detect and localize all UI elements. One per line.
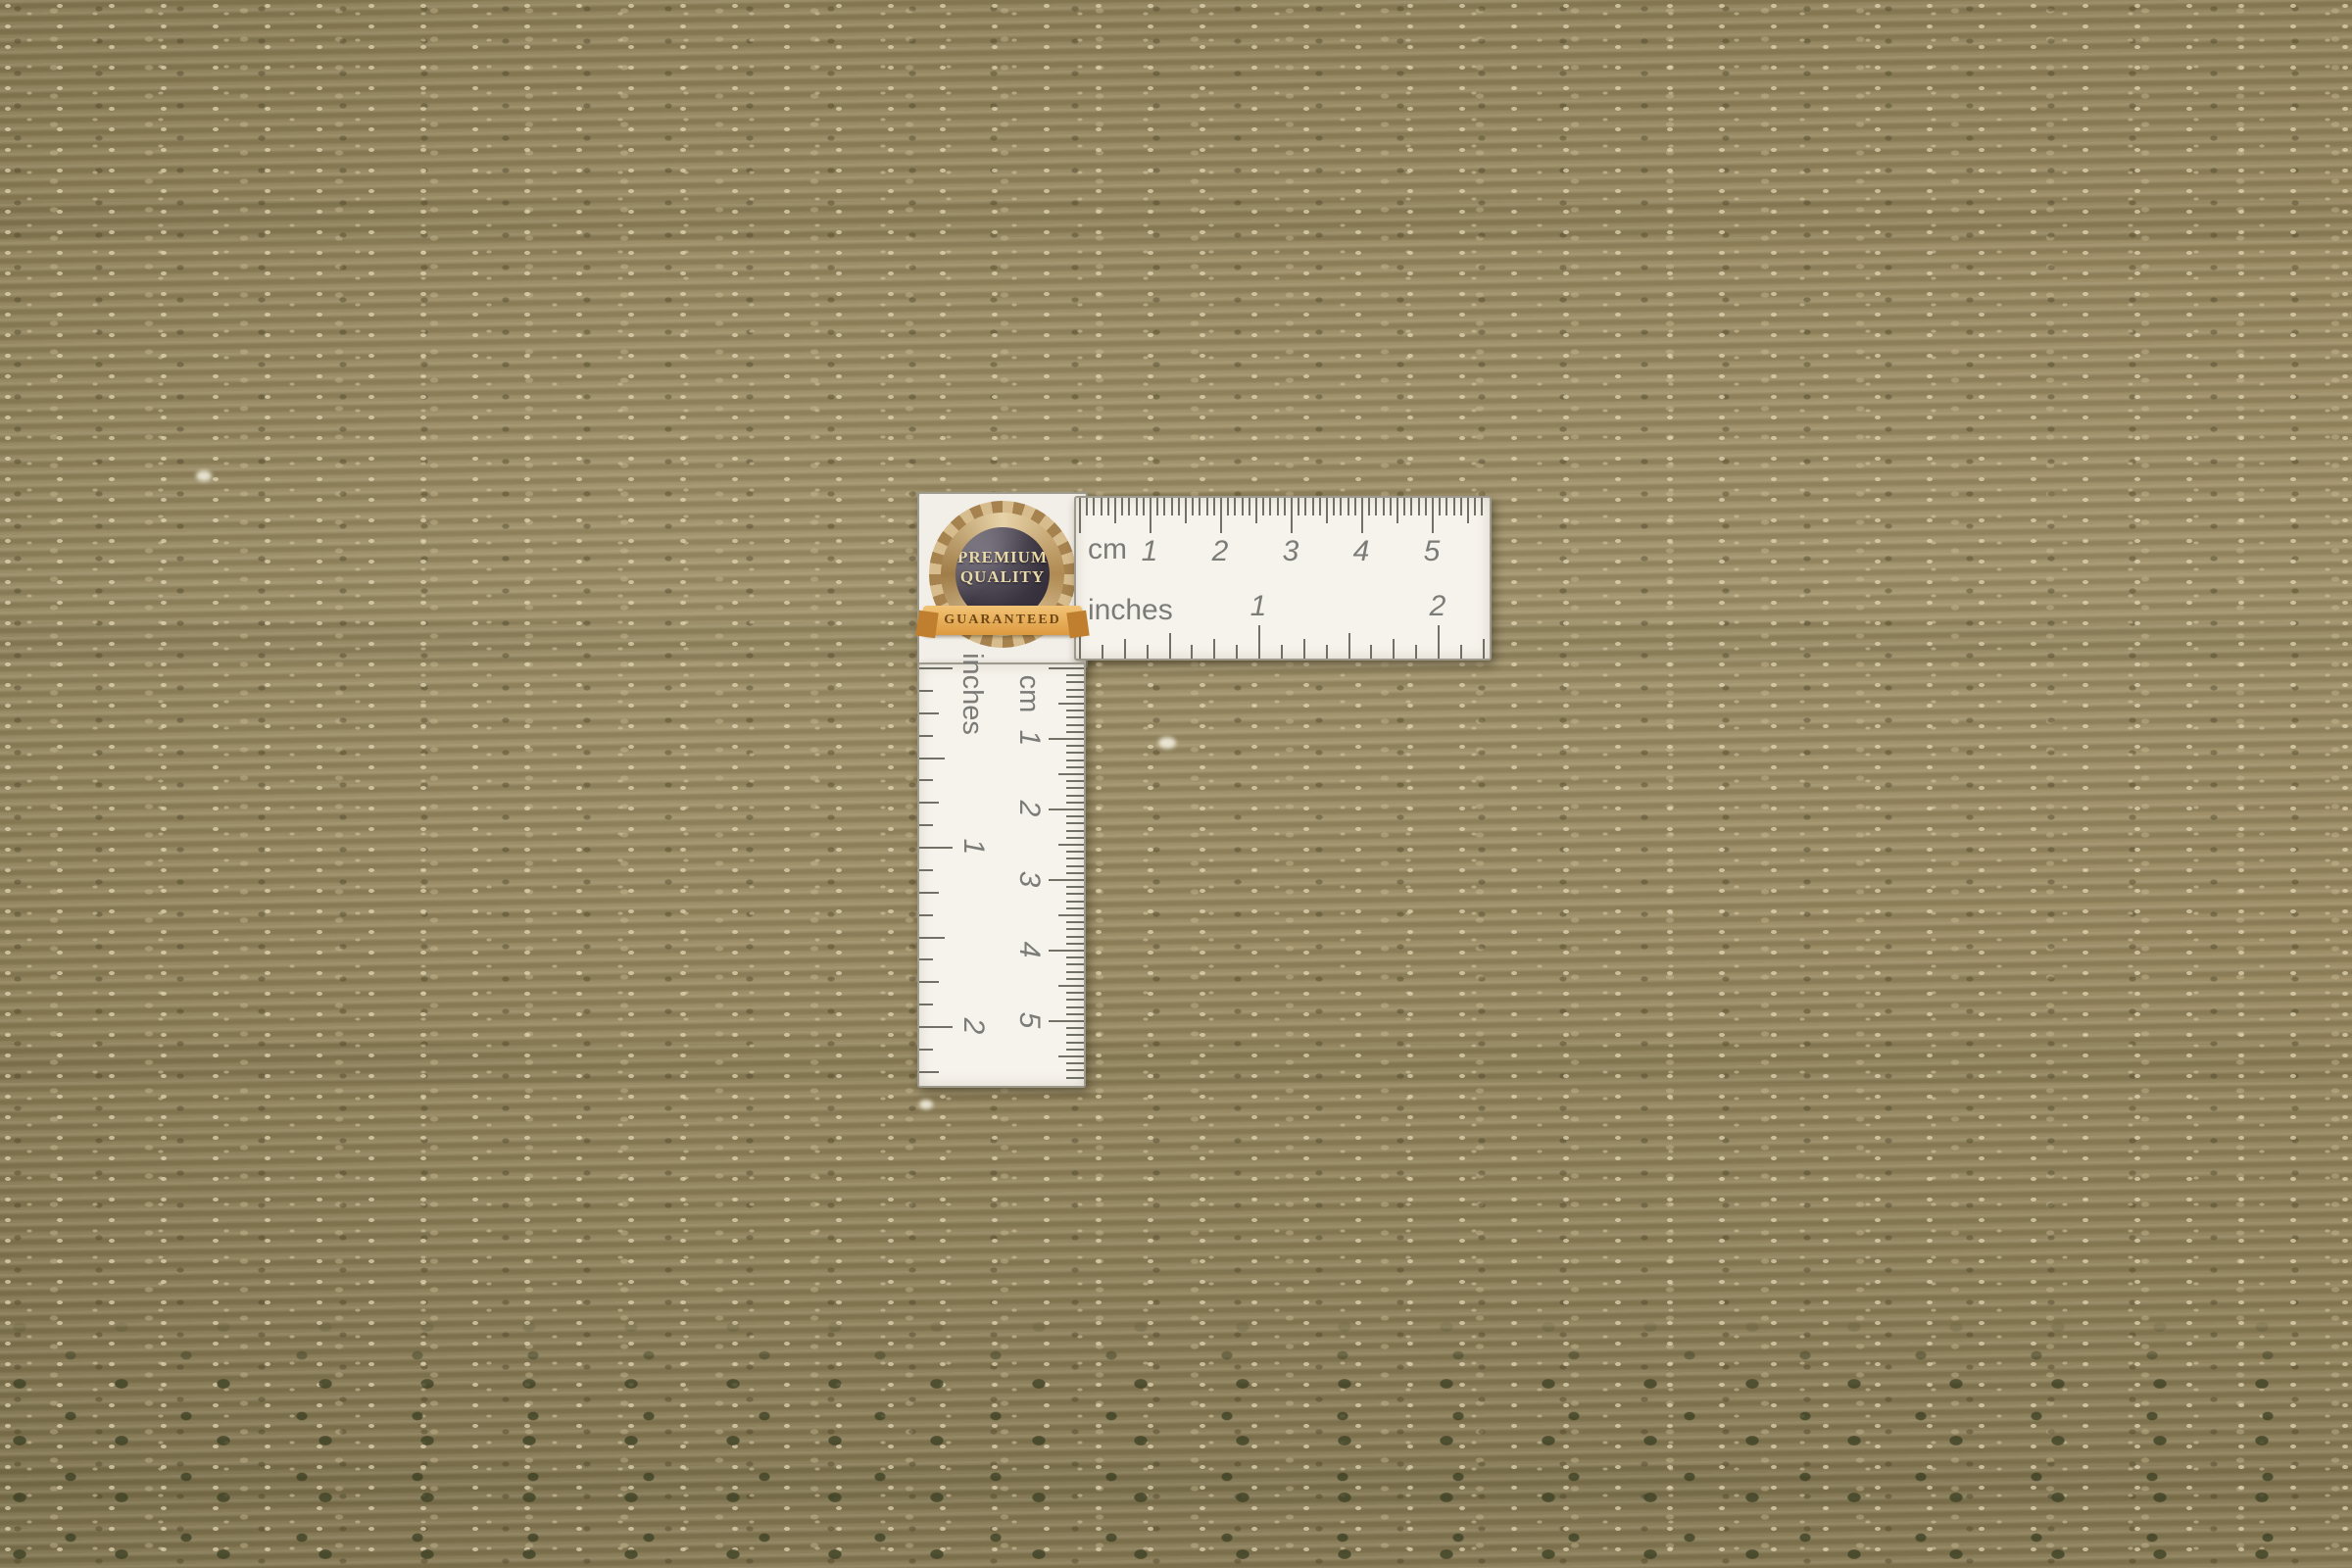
tick-mark bbox=[1066, 724, 1084, 726]
tick-mark bbox=[1049, 738, 1084, 740]
ruler-number: 1 bbox=[1239, 592, 1278, 621]
tick-mark bbox=[1234, 498, 1236, 515]
tick-mark bbox=[1066, 1069, 1084, 1071]
tick-mark bbox=[1066, 681, 1084, 683]
tick-mark bbox=[1124, 639, 1126, 659]
tick-mark bbox=[1066, 971, 1084, 973]
tick-mark bbox=[1058, 773, 1084, 775]
tick-mark bbox=[919, 869, 933, 871]
tick-mark bbox=[1066, 830, 1084, 832]
tick-mark bbox=[919, 1026, 953, 1028]
tick-mark bbox=[1079, 498, 1081, 533]
tick-mark bbox=[1066, 936, 1084, 938]
tick-mark bbox=[1171, 498, 1173, 515]
tick-mark bbox=[1066, 851, 1084, 853]
tick-mark bbox=[1066, 999, 1084, 1001]
ruler-number: 2 bbox=[1009, 789, 1049, 828]
tick-mark bbox=[1291, 498, 1293, 533]
tick-mark bbox=[1445, 498, 1447, 515]
tick-mark bbox=[1396, 498, 1398, 523]
ruler-number: 5 bbox=[1412, 537, 1451, 566]
tick-mark bbox=[1303, 639, 1305, 659]
tick-mark bbox=[1114, 498, 1116, 523]
tick-mark bbox=[1453, 498, 1455, 515]
tick-mark bbox=[919, 690, 933, 692]
tick-mark bbox=[1163, 498, 1165, 515]
tick-mark bbox=[1066, 689, 1084, 691]
tick-mark bbox=[1066, 901, 1084, 903]
tick-mark bbox=[1185, 498, 1187, 523]
tick-mark bbox=[1049, 879, 1084, 881]
tick-mark bbox=[1147, 645, 1149, 659]
tick-mark bbox=[1066, 1062, 1084, 1064]
tick-mark bbox=[1277, 498, 1279, 515]
tick-mark bbox=[1375, 498, 1377, 515]
tick-mark bbox=[1066, 992, 1084, 994]
ruler-number: 2 bbox=[1418, 592, 1457, 621]
ruler-number: 4 bbox=[1009, 930, 1049, 969]
tick-mark bbox=[919, 802, 939, 804]
tick-mark bbox=[1319, 498, 1321, 515]
tick-mark bbox=[1136, 498, 1138, 515]
tick-mark bbox=[919, 1004, 933, 1005]
tick-mark bbox=[1066, 893, 1084, 895]
tick-mark bbox=[1066, 1077, 1084, 1079]
tick-mark bbox=[1284, 498, 1286, 515]
tick-mark bbox=[1354, 498, 1356, 515]
tick-mark bbox=[1242, 498, 1244, 515]
ruler-number: 5 bbox=[1009, 1001, 1049, 1040]
badge-title: PREMIUM QUALITY bbox=[957, 548, 1048, 587]
tick-mark bbox=[1191, 645, 1193, 659]
tick-mark bbox=[1206, 498, 1208, 515]
tick-mark bbox=[1383, 498, 1385, 515]
tick-mark bbox=[1438, 625, 1440, 659]
ruler-number: 4 bbox=[1342, 537, 1381, 566]
ruler-number: 1 bbox=[954, 827, 993, 866]
tick-mark bbox=[1143, 498, 1145, 515]
badge-ribbon-text: GUARANTEED bbox=[944, 612, 1061, 628]
tick-mark bbox=[1220, 498, 1222, 533]
tick-mark bbox=[1393, 639, 1395, 659]
tick-mark bbox=[1121, 498, 1123, 515]
ruler-number: 3 bbox=[1009, 859, 1049, 899]
hruler-cm-label: cm bbox=[1088, 535, 1127, 564]
tick-mark bbox=[1304, 498, 1306, 515]
tick-mark bbox=[919, 958, 933, 960]
hruler-inches-label: inches bbox=[1088, 596, 1173, 625]
tick-mark bbox=[1066, 857, 1084, 859]
tick-mark bbox=[919, 981, 939, 983]
tick-mark bbox=[1066, 822, 1084, 824]
tick-mark bbox=[1368, 498, 1370, 515]
tick-mark bbox=[1066, 1049, 1084, 1051]
tick-mark bbox=[1066, 886, 1084, 888]
tick-mark bbox=[1483, 639, 1485, 659]
tick-mark bbox=[1312, 498, 1314, 515]
tick-mark bbox=[1066, 943, 1084, 945]
tick-mark bbox=[1066, 815, 1084, 817]
tick-mark bbox=[1227, 498, 1229, 515]
ruler-number: 2 bbox=[1200, 537, 1240, 566]
tick-mark bbox=[1049, 950, 1084, 952]
tick-mark bbox=[919, 712, 939, 714]
ruler-number: 3 bbox=[1271, 537, 1310, 566]
tick-mark bbox=[1255, 498, 1257, 523]
tick-mark bbox=[1102, 645, 1103, 659]
rug-photo-scene: PREMIUM QUALITY GUARANTEED cm inches 123… bbox=[0, 0, 2352, 1568]
tick-mark bbox=[1481, 498, 1483, 515]
wool-fuzz-speck bbox=[919, 1100, 933, 1109]
tick-mark bbox=[1066, 963, 1084, 965]
ruler-number: 1 bbox=[1130, 537, 1169, 566]
tick-mark bbox=[1066, 752, 1084, 754]
tick-mark bbox=[1066, 928, 1084, 930]
tick-mark bbox=[1049, 808, 1084, 810]
badge-title-line2: QUALITY bbox=[957, 567, 1048, 587]
tick-mark bbox=[1236, 645, 1238, 659]
vruler-inches-label: inches bbox=[953, 635, 992, 753]
tick-mark bbox=[919, 1049, 933, 1051]
tick-mark bbox=[1425, 498, 1427, 515]
tick-mark bbox=[1049, 1020, 1084, 1022]
tick-mark bbox=[1418, 498, 1420, 515]
tick-mark bbox=[1199, 498, 1200, 515]
tick-mark bbox=[1101, 498, 1102, 515]
tick-mark bbox=[1066, 780, 1084, 782]
tick-mark bbox=[919, 758, 945, 759]
tick-mark bbox=[1269, 498, 1271, 515]
tick-mark bbox=[1066, 1027, 1084, 1029]
tick-mark bbox=[1066, 872, 1084, 874]
tick-mark bbox=[1066, 921, 1084, 923]
tick-mark bbox=[1156, 498, 1158, 515]
tick-mark bbox=[1066, 1006, 1084, 1008]
tick-mark bbox=[1066, 710, 1084, 711]
tick-mark bbox=[919, 937, 945, 939]
tick-mark bbox=[1169, 633, 1171, 659]
tick-mark bbox=[1066, 1013, 1084, 1015]
tick-mark bbox=[1066, 795, 1084, 797]
tick-mark bbox=[1066, 716, 1084, 718]
tick-mark bbox=[1066, 759, 1084, 761]
tick-mark bbox=[1178, 498, 1180, 515]
badge-ribbon: GUARANTEED bbox=[923, 606, 1082, 635]
tick-mark bbox=[919, 735, 933, 737]
wool-fuzz-speck bbox=[196, 470, 212, 481]
tick-mark bbox=[919, 1071, 939, 1073]
tick-mark bbox=[1066, 1042, 1084, 1044]
tick-mark bbox=[1370, 645, 1372, 659]
tick-mark bbox=[1467, 498, 1469, 523]
vertical-ruler: cm inches 12345 12 bbox=[917, 662, 1086, 1088]
tick-mark bbox=[1066, 907, 1084, 909]
tick-mark bbox=[1066, 745, 1084, 747]
tick-mark bbox=[1049, 667, 1084, 669]
tick-mark bbox=[1281, 645, 1283, 659]
tick-mark bbox=[1058, 703, 1084, 705]
tick-mark bbox=[1066, 1034, 1084, 1036]
tick-mark bbox=[1058, 1055, 1084, 1057]
tick-mark bbox=[1410, 498, 1412, 515]
horizontal-ruler: cm inches 12345 12 bbox=[1074, 496, 1492, 661]
tick-mark bbox=[1066, 956, 1084, 958]
tick-mark bbox=[1066, 837, 1084, 839]
tick-mark bbox=[1415, 645, 1417, 659]
tick-mark bbox=[1403, 498, 1405, 515]
tick-mark bbox=[1066, 802, 1084, 804]
tick-mark bbox=[919, 667, 953, 669]
ruler-number: 2 bbox=[954, 1006, 993, 1046]
tick-mark bbox=[1361, 498, 1363, 533]
premium-quality-badge: PREMIUM QUALITY GUARANTEED bbox=[917, 492, 1088, 668]
tick-mark bbox=[1066, 731, 1084, 733]
tick-mark bbox=[1258, 625, 1260, 659]
tick-mark bbox=[919, 892, 939, 894]
tick-mark bbox=[1066, 696, 1084, 698]
tick-mark bbox=[1058, 985, 1084, 987]
tick-mark bbox=[1213, 639, 1215, 659]
tick-mark bbox=[1326, 498, 1328, 523]
tick-mark bbox=[919, 847, 953, 849]
tick-mark bbox=[1066, 865, 1084, 867]
ruler-number: 1 bbox=[1009, 718, 1049, 758]
tick-mark bbox=[1340, 498, 1342, 515]
tick-mark bbox=[1058, 914, 1084, 916]
tick-mark bbox=[1262, 498, 1264, 515]
tick-mark bbox=[1460, 645, 1462, 659]
tick-mark bbox=[1474, 498, 1476, 515]
tick-mark bbox=[1107, 498, 1109, 515]
tick-mark bbox=[1066, 787, 1084, 789]
tick-mark bbox=[1432, 498, 1434, 533]
tick-mark bbox=[1086, 498, 1088, 515]
tick-mark bbox=[1347, 498, 1349, 515]
tick-mark bbox=[1066, 766, 1084, 768]
tick-mark bbox=[1460, 498, 1462, 515]
tick-mark bbox=[1192, 498, 1194, 515]
tick-mark bbox=[1128, 498, 1130, 515]
tick-mark bbox=[919, 779, 933, 781]
tick-mark bbox=[1058, 844, 1084, 846]
tick-mark bbox=[1298, 498, 1299, 515]
tick-mark bbox=[1326, 645, 1328, 659]
tick-mark bbox=[1333, 498, 1335, 515]
tick-mark bbox=[1066, 674, 1084, 676]
tick-mark bbox=[1066, 978, 1084, 980]
tick-mark bbox=[1213, 498, 1215, 515]
tick-mark bbox=[1093, 498, 1095, 515]
rug-knot-dots bbox=[0, 1313, 2352, 1568]
tick-mark bbox=[919, 824, 933, 826]
tick-mark bbox=[1249, 498, 1250, 515]
wool-fuzz-speck bbox=[1158, 737, 1176, 749]
tick-mark bbox=[1150, 498, 1151, 533]
tick-mark bbox=[1390, 498, 1392, 515]
tick-mark bbox=[1348, 633, 1350, 659]
badge-title-line1: PREMIUM bbox=[957, 548, 1048, 567]
tick-mark bbox=[919, 914, 933, 916]
tick-mark bbox=[1439, 498, 1441, 515]
